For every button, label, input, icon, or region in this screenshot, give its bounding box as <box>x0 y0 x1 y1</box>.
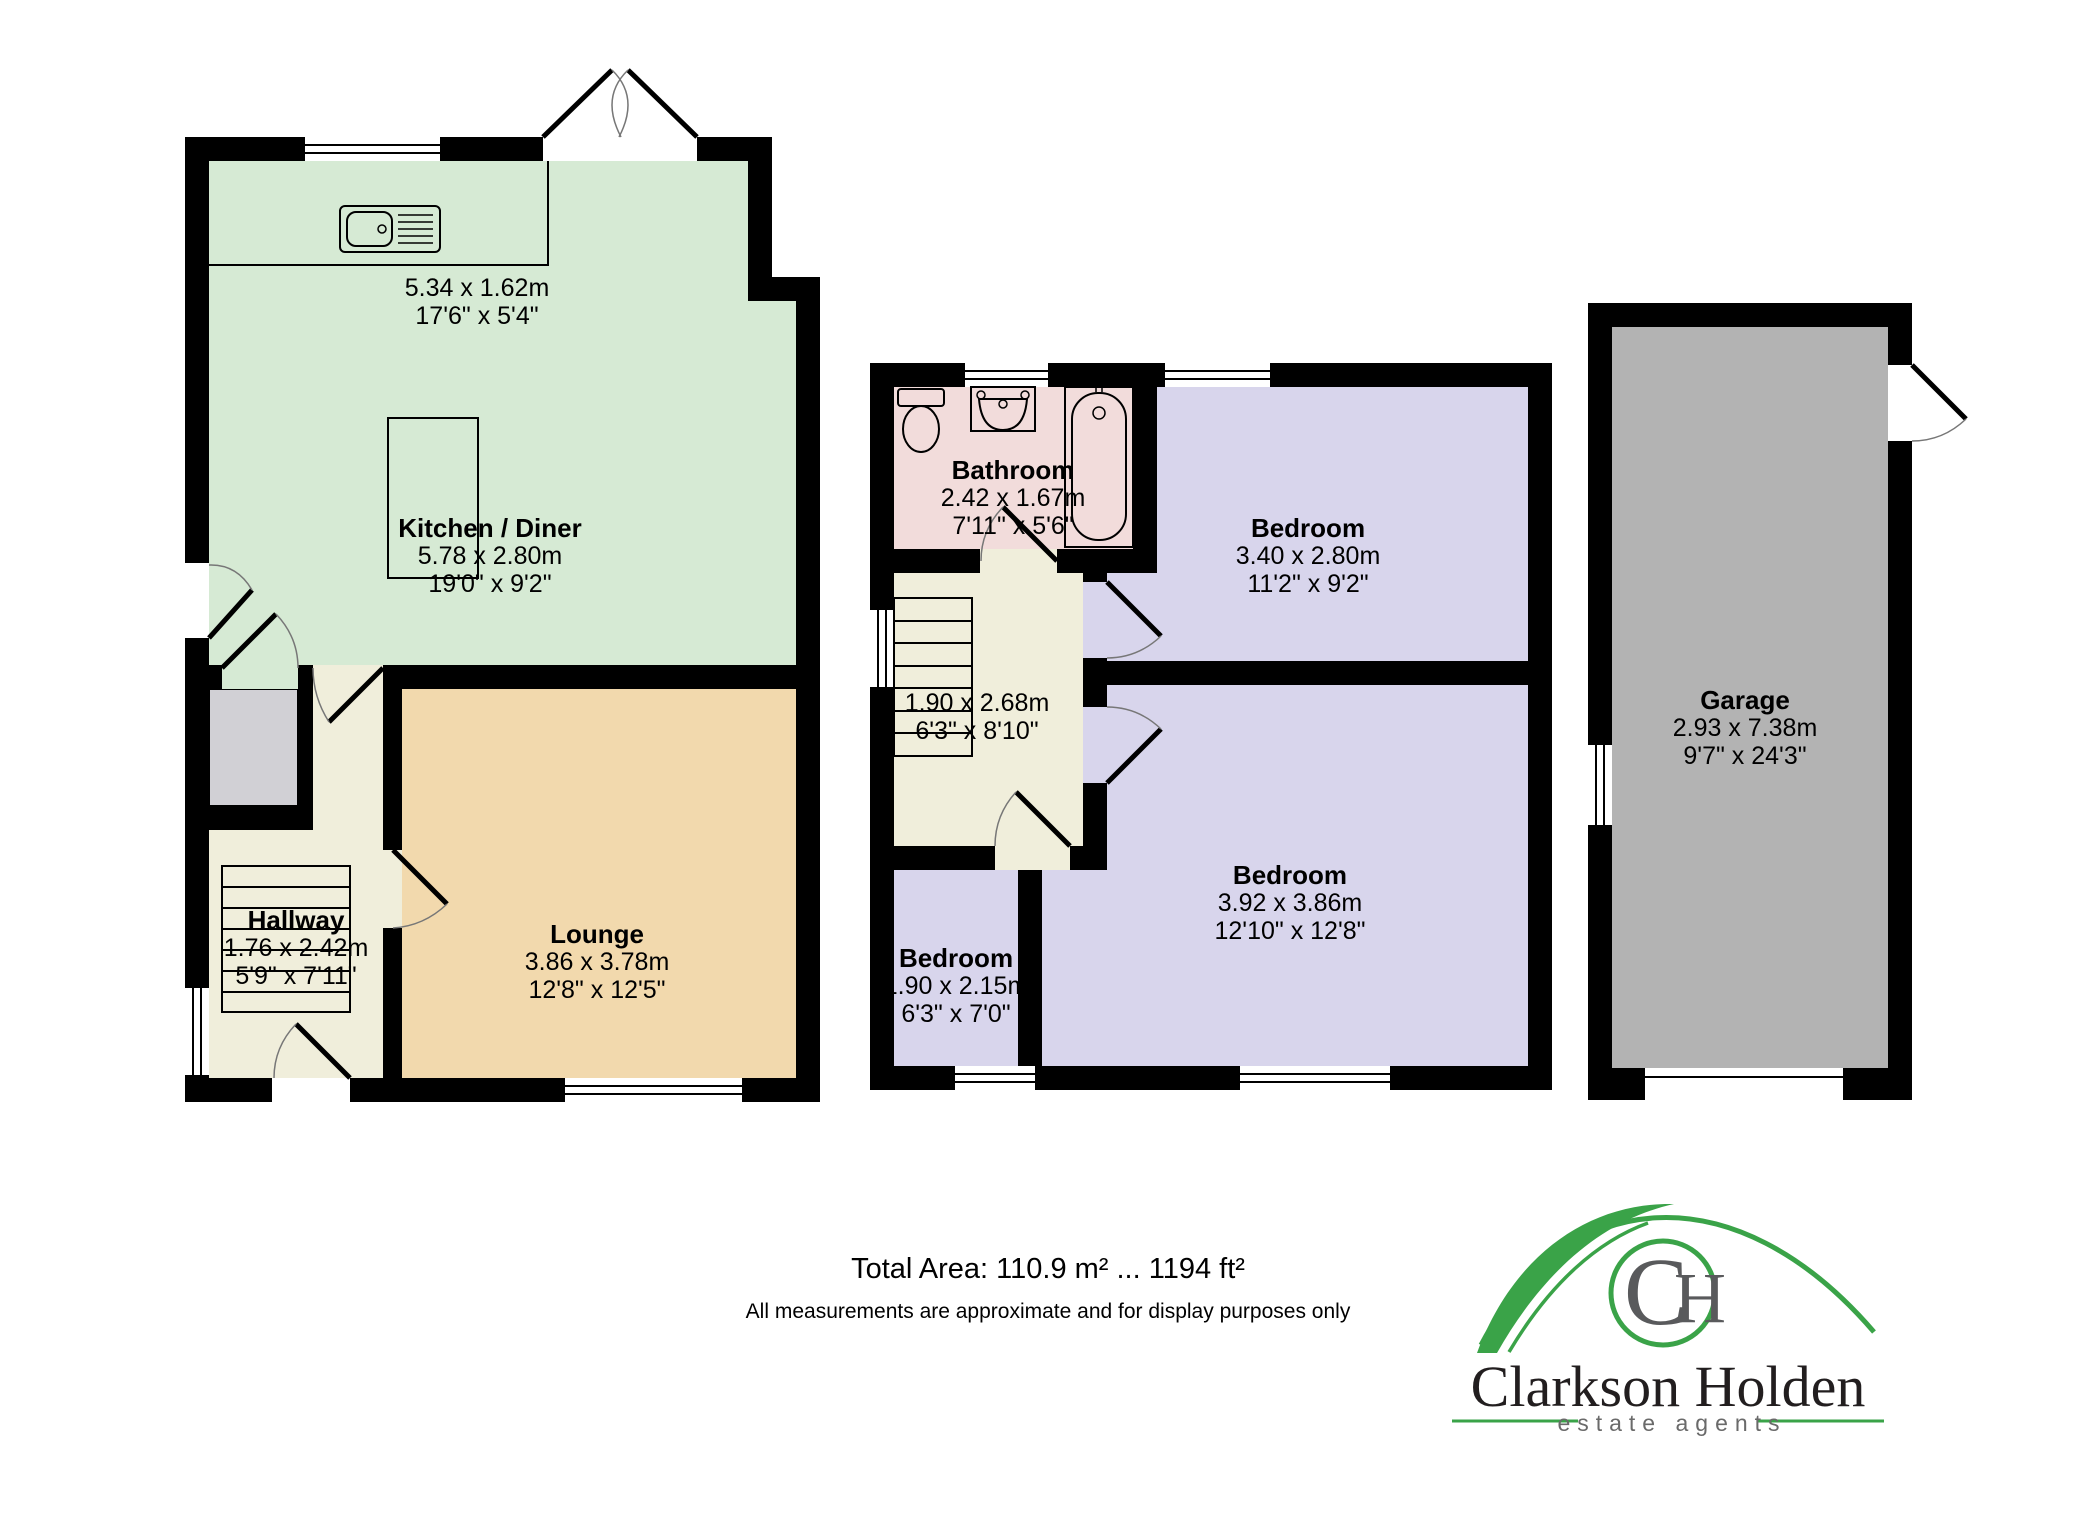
french-doors-icon <box>543 70 697 137</box>
total-area-text: Total Area: 110.9 m² ... 1194 ft² <box>851 1253 1245 1286</box>
landing-window <box>870 610 894 687</box>
kitchen-imperial: 19'0" x 9'2" <box>398 570 581 598</box>
bedroom1-metric: 3.40 x 2.80m <box>1236 542 1381 570</box>
kitchen-name: Kitchen / Diner <box>398 514 581 542</box>
lounge-name: Lounge <box>525 920 670 948</box>
kitchen-side-door-opening <box>185 563 209 638</box>
bedroom3-name: Bedroom <box>884 944 1029 972</box>
bedroom1-name: Bedroom <box>1236 514 1381 542</box>
store-room-area <box>209 689 298 806</box>
bathroom-name: Bathroom <box>941 456 1086 484</box>
bedroom1-window <box>1165 363 1270 387</box>
disclaimer-text: All measurements are approximate and for… <box>746 1300 1351 1324</box>
hallway-label: Hallway 1.76 x 2.42m 5'9" x 7'11" <box>224 906 369 990</box>
floorplan-canvas: 5.34 x 1.62m 17'6" x 5'4" Kitchen / Dine… <box>0 0 2091 1516</box>
lounge-imperial: 12'8" x 12'5" <box>525 976 670 1004</box>
logo-monogram-h: H <box>1674 1262 1726 1334</box>
hallway-name: Hallway <box>224 906 369 934</box>
hallway-metric: 1.76 x 2.42m <box>224 934 369 962</box>
lounge-door-opening <box>383 850 402 928</box>
garage-label: Garage 2.93 x 7.38m 9'7" x 24'3" <box>1673 686 1818 770</box>
hallway-imperial: 5'9" x 7'11" <box>224 962 369 990</box>
garage-imperial: 9'7" x 24'3" <box>1673 742 1818 770</box>
lounge-label: Lounge 3.86 x 3.78m 12'8" x 12'5" <box>525 920 670 1004</box>
bedroom2-label: Bedroom 3.92 x 3.86m 12'10" x 12'8" <box>1214 861 1365 945</box>
garage-side-door <box>1912 365 1966 441</box>
bedroom3-label: Bedroom 1.90 x 2.15m 6'3" x 7'0" <box>884 944 1029 1028</box>
bedroom2-imperial: 12'10" x 12'8" <box>1214 917 1365 945</box>
bedroom1-label: Bedroom 3.40 x 2.80m 11'2" x 9'2" <box>1236 514 1381 598</box>
kitchen-metric: 5.78 x 2.80m <box>398 542 581 570</box>
bedroom3-imperial: 6'3" x 7'0" <box>884 1000 1029 1028</box>
lounge-window <box>565 1078 742 1102</box>
bedroom3-metric: 1.90 x 2.15m <box>884 972 1029 1000</box>
bedroom3-window <box>955 1066 1035 1090</box>
front-door-opening <box>272 1078 350 1102</box>
bedroom2-window <box>1240 1066 1390 1090</box>
garage-metric: 2.93 x 7.38m <box>1673 714 1818 742</box>
bathroom-metric: 2.42 x 1.67m <box>941 484 1086 512</box>
kitchen-counter-imperial: 17'6" x 5'4" <box>405 302 550 330</box>
garage-window <box>1588 745 1612 825</box>
bedroom1-imperial: 11'2" x 9'2" <box>1236 570 1381 598</box>
store-door-opening <box>222 665 298 689</box>
bedroom1-door-opening <box>1083 582 1107 658</box>
bathroom-window <box>965 363 1048 387</box>
kitchen-label: Kitchen / Diner 5.78 x 2.80m 19'0" x 9'2… <box>398 514 581 598</box>
hallway-window <box>185 988 209 1075</box>
agency-tagline: estate agents <box>1557 1412 1786 1435</box>
bathroom-label: Bathroom 2.42 x 1.67m 7'11" x 5'6" <box>941 456 1086 540</box>
bedroom2-metric: 3.92 x 3.86m <box>1214 889 1365 917</box>
wall-notch <box>772 137 820 277</box>
landing-metric: 1.90 x 2.68m <box>905 689 1050 717</box>
landing-imperial: 6'3" x 8'10" <box>905 717 1050 745</box>
bedroom2-door-opening <box>1083 707 1107 783</box>
bedroom2-name: Bedroom <box>1214 861 1365 889</box>
lounge-metric: 3.86 x 3.78m <box>525 948 670 976</box>
kitchen-counter-label: 5.34 x 1.62m 17'6" x 5'4" <box>405 274 550 330</box>
agency-name: Clarkson Holden <box>1471 1358 1866 1416</box>
bedroom3-door-opening <box>995 846 1070 870</box>
bathroom-imperial: 7'11" x 5'6" <box>941 512 1086 540</box>
garage-side-door-opening <box>1888 365 1912 441</box>
lounge-room-area <box>402 689 796 1078</box>
garage-door-opening <box>1645 1068 1843 1100</box>
landing-label: 1.90 x 2.68m 6'3" x 8'10" <box>905 689 1050 745</box>
kitchen-window <box>305 137 440 161</box>
kitchen-counter-metric: 5.34 x 1.62m <box>405 274 550 302</box>
french-doors-opening <box>543 137 697 161</box>
garage-name: Garage <box>1673 686 1818 714</box>
